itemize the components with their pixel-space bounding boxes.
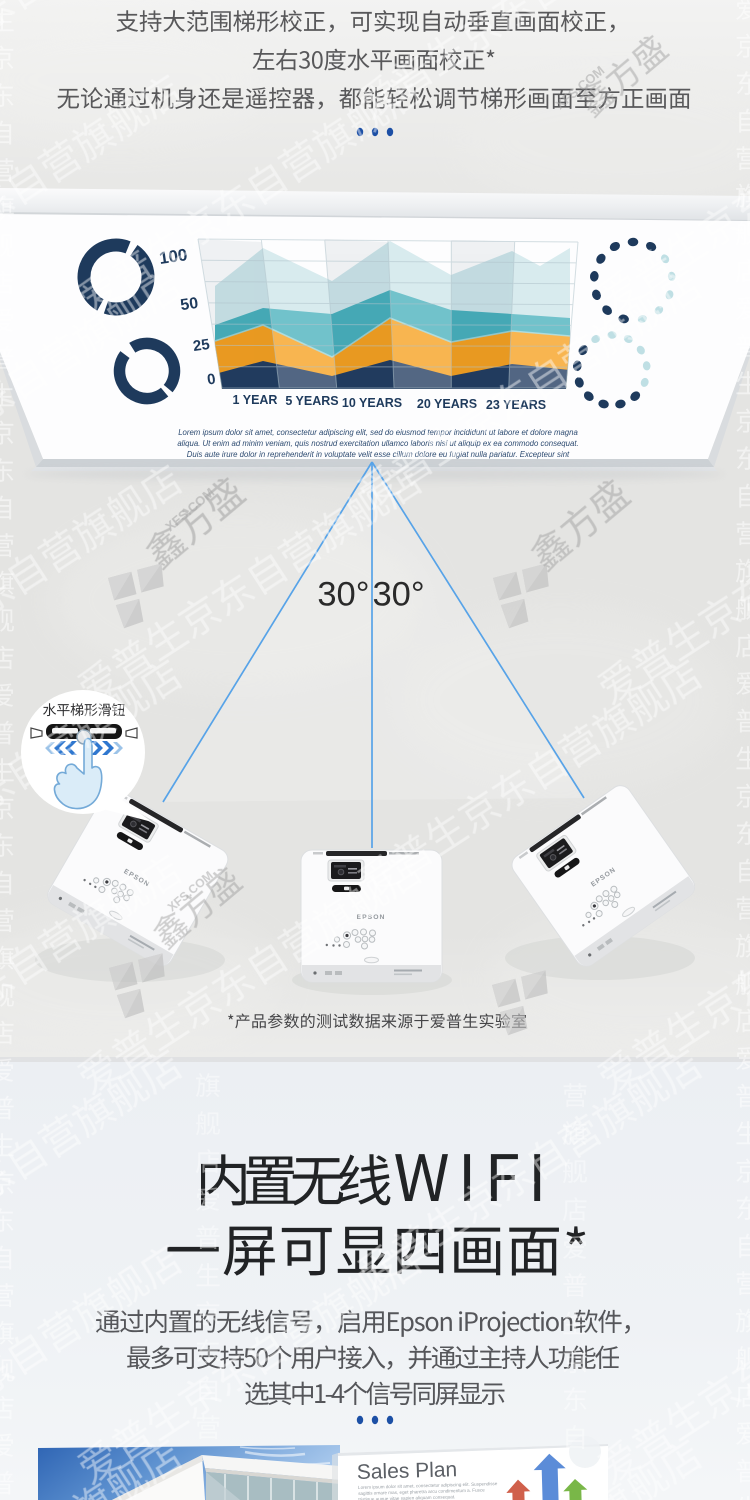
svg-text:Lorem ipsum dolor sit amet, co: Lorem ipsum dolor sit amet, consectetur … bbox=[178, 428, 578, 437]
svg-text:5 YEARS: 5 YEARS bbox=[285, 394, 338, 408]
svg-text:50: 50 bbox=[179, 295, 199, 314]
svg-text:aliqua. Ut enim ad minim venia: aliqua. Ut enim ad minim veniam, quis no… bbox=[177, 439, 578, 448]
svg-text:25: 25 bbox=[192, 336, 211, 355]
svg-text:Sales Plan: Sales Plan bbox=[356, 1458, 457, 1484]
svg-text:10 YEARS: 10 YEARS bbox=[342, 396, 402, 410]
svg-text:Duis aute irure dolor in repre: Duis aute irure dolor in reprehenderit i… bbox=[187, 450, 570, 459]
svg-text:1 YEAR: 1 YEAR bbox=[233, 393, 278, 407]
svg-text:30°: 30° bbox=[373, 576, 425, 614]
svg-text:30°: 30° bbox=[317, 576, 369, 614]
svg-text:20 YEARS: 20 YEARS bbox=[417, 397, 477, 411]
